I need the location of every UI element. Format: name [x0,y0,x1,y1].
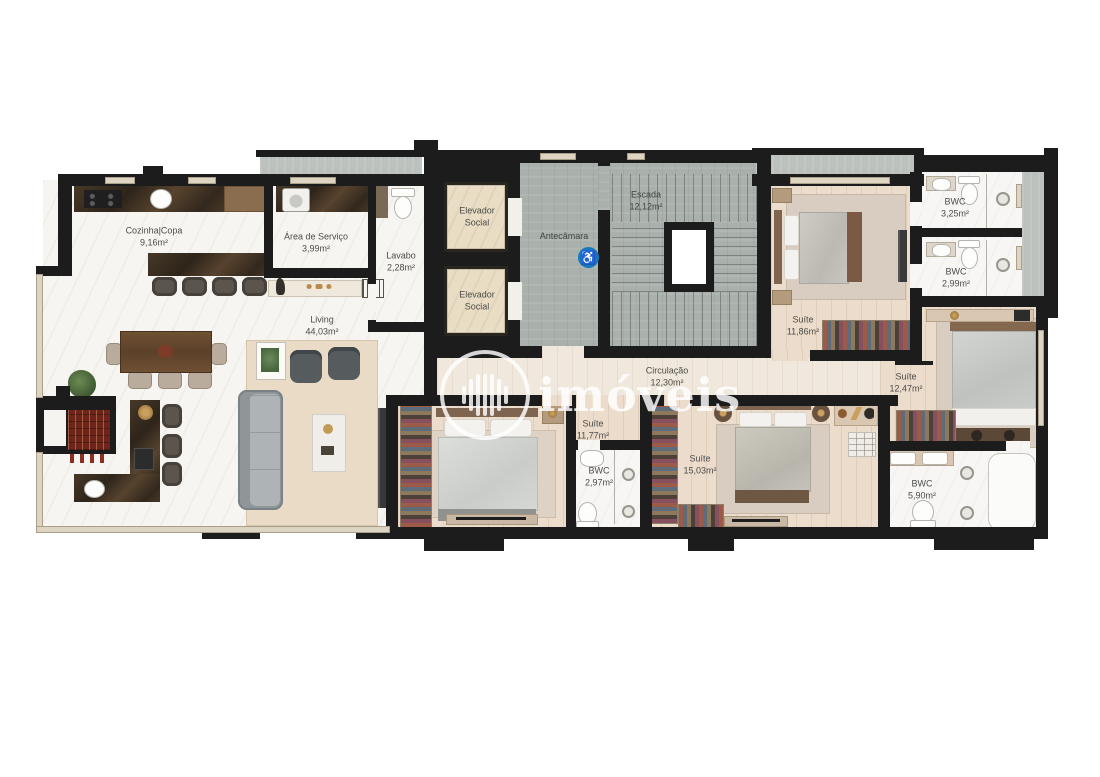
room-area: 2,97m² [585,477,613,487]
shower-head [622,468,635,481]
bed [733,402,811,504]
room-area: 5,90m² [908,490,936,500]
room-area: 2,99m² [942,278,970,288]
window-strip [188,177,216,184]
room-area: 3,99m² [302,243,330,253]
bed-foot-runner [847,212,862,282]
round-nightstand [812,404,830,422]
room-label-antecamara: Antecâmara [540,231,589,243]
island-stool [152,277,177,296]
bed-headboard [774,210,782,284]
shower-head [996,192,1010,206]
counter-appliance [1014,310,1030,321]
elevator-door [508,282,522,320]
bar-sink [84,480,105,498]
dining-chair [188,371,212,389]
room-area: 3,25m² [941,208,969,218]
wall [58,174,72,276]
desk-items [838,407,874,420]
wall [256,150,426,157]
kitchen-wood-cabinet [224,186,266,212]
pillar [56,386,70,398]
bar-stool [162,434,182,458]
wardrobe-rack [400,402,432,528]
window-strip [290,177,336,184]
bed-duvet [799,212,849,284]
kitchen-island [148,253,270,276]
door-opening [598,166,610,210]
door-opening [1006,441,1030,451]
bed-pillow [784,215,799,246]
room-area: 12,30m² [650,377,683,387]
bar-niche [44,410,66,446]
wall [386,395,542,406]
wall [810,350,922,361]
tech-balcony-left [260,156,422,176]
door-opening [664,395,690,406]
room-name: BWC [588,465,609,475]
coffee-table-bowl [323,424,333,434]
room-name: Lavabo [386,250,416,260]
bathtub-water [993,458,1029,524]
pillar [688,539,734,551]
wall [914,155,1058,172]
wall [910,296,1058,307]
window-strip [790,177,890,184]
door-opening [910,202,922,226]
shower-head [622,505,635,518]
shower-head [960,506,974,520]
tech-balcony-right [756,154,916,176]
bar-stool [162,462,182,486]
stair-void [672,230,706,284]
bwc590-sink [922,452,948,465]
wall-art-plant [261,348,279,372]
tv-screen [732,519,780,522]
elevator-door [508,198,522,236]
door-opening [910,264,922,288]
nightstand [772,290,792,305]
bar-stool [162,404,182,428]
pillar [424,539,504,551]
wheelchair-glyph: ♿ [580,251,596,264]
room-label-suite-1247: Suíte 12,47m² [889,371,922,394]
tv-screen [456,517,526,520]
counter-lamp [950,311,959,320]
wine-rack [68,410,110,450]
room-area: 11,77m² [577,430,609,440]
bed-pillow [739,412,772,427]
wall [386,527,1048,539]
stair-treads-right [714,222,758,292]
room-area: 2,28m² [387,262,415,272]
door-opening [368,284,376,320]
tv-console [898,230,907,282]
window-strip [540,153,576,160]
shower-glass [986,240,987,296]
room-label-suite-1186: Suíte 11,86m² [787,314,819,337]
tech-shaft [1022,172,1044,296]
wall [264,186,273,276]
bwc299-sink [932,244,951,257]
room-label-suite-1503: Suíte 15,03m² [683,453,716,476]
room-label-elevador-2: Elevador Social [450,289,504,312]
cooktop [84,190,122,208]
room-area: 12,12m² [629,201,662,211]
gold-decor [306,284,332,289]
window-strip [105,177,135,184]
coffee-table [312,414,346,472]
room-name: Escada [631,189,661,199]
bed-duvet [735,427,811,492]
island-stool [212,277,237,296]
room-name: Circulação [646,365,689,375]
room-area: 15,03m² [683,465,716,475]
island-stool [242,277,267,296]
window-strip [1016,246,1022,270]
room-name: Área de Serviço [284,231,348,241]
nightstand-lamp [548,409,557,418]
armchair [328,347,360,380]
bed-foot-throw [735,490,809,503]
bed [436,408,538,522]
bed-headboard [436,408,538,417]
wall [424,150,769,163]
coffee-table-book [321,446,334,455]
sofa-seat [250,394,280,506]
room-name: Antecâmara [540,231,589,241]
room-name: Living [310,314,334,324]
nightstand [772,188,792,203]
door-opening [772,350,808,361]
bed [950,322,1036,444]
shower-head [960,466,974,480]
shower-glass [986,174,987,228]
espresso-machine [134,448,154,470]
bwc325-sink [932,178,951,191]
room-name: Suíte [689,453,710,463]
dining-chair [211,343,227,365]
window-strip [1016,184,1022,208]
room-label-bwc-590: BWC 5,90m² [908,478,936,501]
stair-treads-bottom [612,292,758,346]
room-name: Suíte [895,371,916,381]
bwc590-sink [890,452,916,465]
room-area: 44,03m² [305,326,338,336]
bed-pillow [784,249,799,280]
room-name: Cozinha|Copa [126,225,183,235]
entry-door-opening [542,346,584,358]
room-name: Elevador Social [459,205,495,227]
horse-sculpture [276,278,285,295]
bed-pillow [774,412,807,427]
wardrobe-rack [650,402,678,524]
room-label-suite-1177: Suíte 11,77m² [577,418,609,441]
room-label-escada: Escada 12,12m² [629,189,662,212]
bed-pillow [444,419,486,437]
wall [752,148,924,155]
room-label-living: Living 44,03m² [305,314,338,337]
pillar [934,539,1034,550]
room-label-circulacao: Circulação 12,30m² [646,365,689,388]
room-label-elevador-1: Elevador Social [450,205,504,228]
lavabo-toilet-bowl [394,196,412,219]
bed-duvet [438,437,538,511]
round-nightstand [714,404,732,422]
door-opening [542,395,572,406]
room-label-bwc-297: BWC 2,97m² [585,465,613,488]
room-label-servico: Área de Serviço 3,99m² [284,231,348,254]
pillar [414,140,438,152]
wardrobe-rack [822,320,914,352]
room-name: Elevador Social [459,289,495,311]
floor-plan: Cozinha|Copa 9,16m² Área de Serviço 3,99… [0,0,1100,777]
wall [424,150,437,397]
shower-head [996,258,1010,272]
pillar [143,166,163,175]
potted-plant [68,370,96,398]
dining-chair [158,371,182,389]
kitchen-sink [150,189,172,209]
room-label-cozinha: Cozinha|Copa 9,16m² [126,225,183,248]
room-name: BWC [945,266,966,276]
wall [264,268,376,278]
wall [566,395,576,539]
room-area: 12,47m² [889,383,922,393]
armchair [290,350,322,383]
washing-machine [282,188,310,212]
wall [610,346,758,358]
room-name: BWC [911,478,932,488]
room-name: Suíte [792,314,813,324]
window-strip [1038,330,1044,426]
room-name: BWC [944,196,965,206]
wall [878,441,1008,451]
room-label-lavabo: Lavabo 2,28m² [386,250,416,273]
wheelchair-icon: ♿ [578,247,599,268]
bed-pillow [490,419,532,437]
wall [1044,148,1058,318]
bed-headboard [950,322,1036,331]
room-label-bwc-325: BWC 3,25m² [941,196,969,219]
room-area: 11,86m² [787,326,819,336]
wardrobe-rack [678,504,724,529]
bed-duvet [952,331,1036,410]
window-strip [627,153,645,160]
wall [386,395,398,539]
bed-sheet [952,408,1036,426]
room-name: Suíte [582,418,603,428]
wall [922,228,1022,237]
room-label-bwc-299: BWC 2,99m² [942,266,970,289]
dining-chair [128,371,152,389]
gold-tray [138,405,153,420]
window-strip [36,526,390,533]
wall [640,395,652,539]
bed [774,210,864,284]
island-stool [182,277,207,296]
window-strip [36,452,43,533]
stair-treads-left [612,222,664,292]
shower-glass [614,444,615,524]
wall [878,395,890,539]
storage-cabinet [848,432,876,457]
table-centerpiece [158,345,173,358]
window-strip [36,274,43,398]
room-area: 9,16m² [140,237,168,247]
